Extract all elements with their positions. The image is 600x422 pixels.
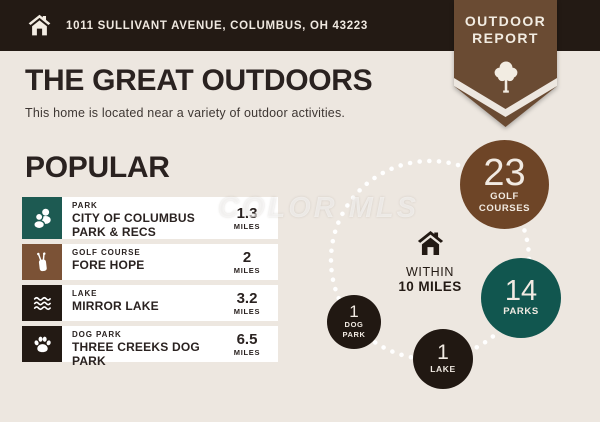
distance-unit: MILES: [234, 307, 260, 316]
home-icon: [415, 229, 446, 258]
place-category: LAKE: [72, 289, 216, 299]
bubble-label-line1: PARKS: [503, 305, 539, 318]
popular-places-list: PARK CITY OF COLUMBUS PARK & RECS 1.3 MI…: [22, 197, 278, 367]
outdoor-report-badge: OUTDOOR REPORT: [454, 0, 557, 128]
distance-value: 6.5: [237, 332, 258, 347]
property-address: 1011 SULLIVANT AVENUE, COLUMBUS, OH 4322…: [66, 20, 368, 32]
bubble-count: 14: [505, 278, 537, 306]
popular-heading: POPULAR: [25, 151, 170, 185]
list-item-text: DOG PARK THREE CREEKS DOG PARK: [62, 326, 220, 362]
place-name: CITY OF COLUMBUS PARK & RECS: [72, 212, 216, 239]
list-item-text: GOLF COURSE FORE HOPE: [62, 244, 220, 280]
bubble-golf-courses: 23 GOLF COURSES: [460, 140, 549, 229]
tree-icon: [487, 54, 525, 100]
bubble-label-line1: LAKE: [430, 363, 456, 376]
place-name: MIRROR LAKE: [72, 300, 216, 313]
bubble-label-line2: COURSES: [479, 203, 530, 215]
place-distance: 1.3 MILES: [220, 197, 278, 239]
list-item-dog-park: DOG PARK THREE CREEKS DOG PARK 6.5 MILES: [22, 326, 278, 362]
place-name: FORE HOPE: [72, 259, 216, 272]
distance-value: 1.3: [237, 206, 258, 221]
radius-center: WITHIN 10 MILES: [380, 229, 480, 294]
badge-title: OUTDOOR REPORT: [454, 13, 557, 47]
bubble-label-line2: PARK: [342, 330, 365, 340]
bubble-count: 23: [483, 155, 525, 191]
place-category: GOLF COURSE: [72, 248, 216, 258]
list-item-park: PARK CITY OF COLUMBUS PARK & RECS 1.3 MI…: [22, 197, 278, 239]
badge-title-line1: OUTDOOR: [454, 13, 557, 30]
waves-icon: [22, 285, 62, 321]
radius-label-line2: 10 MILES: [380, 279, 480, 294]
bubble-count: 1: [349, 304, 358, 320]
page-title: THE GREAT OUTDOORS: [25, 64, 372, 98]
distance-value: 2: [243, 250, 251, 265]
distance-value: 3.2: [237, 291, 258, 306]
bubble-count: 1: [437, 343, 449, 363]
bubble-label-line1: DOG: [345, 320, 364, 330]
place-category: DOG PARK: [72, 330, 216, 340]
place-category: PARK: [72, 201, 216, 211]
place-name: THREE CREEKS DOG PARK: [72, 341, 216, 368]
bubble-dog-park: 1 DOG PARK: [327, 295, 381, 349]
radius-label-line1: WITHIN: [380, 265, 480, 279]
page-subtitle: This home is located near a variety of o…: [25, 106, 345, 120]
distance-unit: MILES: [234, 348, 260, 357]
distance-unit: MILES: [234, 266, 260, 275]
park-people-icon: [22, 197, 62, 239]
list-item-lake: LAKE MIRROR LAKE 3.2 MILES: [22, 285, 278, 321]
outdoor-report-page: 1011 SULLIVANT AVENUE, COLUMBUS, OH 4322…: [0, 0, 600, 422]
list-item-text: LAKE MIRROR LAKE: [62, 285, 220, 321]
bubble-label-line1: GOLF: [490, 191, 519, 203]
golf-bag-icon: [22, 244, 62, 280]
place-distance: 6.5 MILES: [220, 326, 278, 362]
bubble-lake: 1 LAKE: [413, 329, 473, 389]
badge-title-line2: REPORT: [454, 30, 557, 47]
place-distance: 2 MILES: [220, 244, 278, 280]
place-distance: 3.2 MILES: [220, 285, 278, 321]
list-item-text: PARK CITY OF COLUMBUS PARK & RECS: [62, 197, 220, 239]
list-item-golf-course: GOLF COURSE FORE HOPE 2 MILES: [22, 244, 278, 280]
paw-icon: [22, 326, 62, 362]
home-icon: [26, 13, 53, 38]
distance-unit: MILES: [234, 222, 260, 231]
bubble-parks: 14 PARKS: [481, 258, 561, 338]
